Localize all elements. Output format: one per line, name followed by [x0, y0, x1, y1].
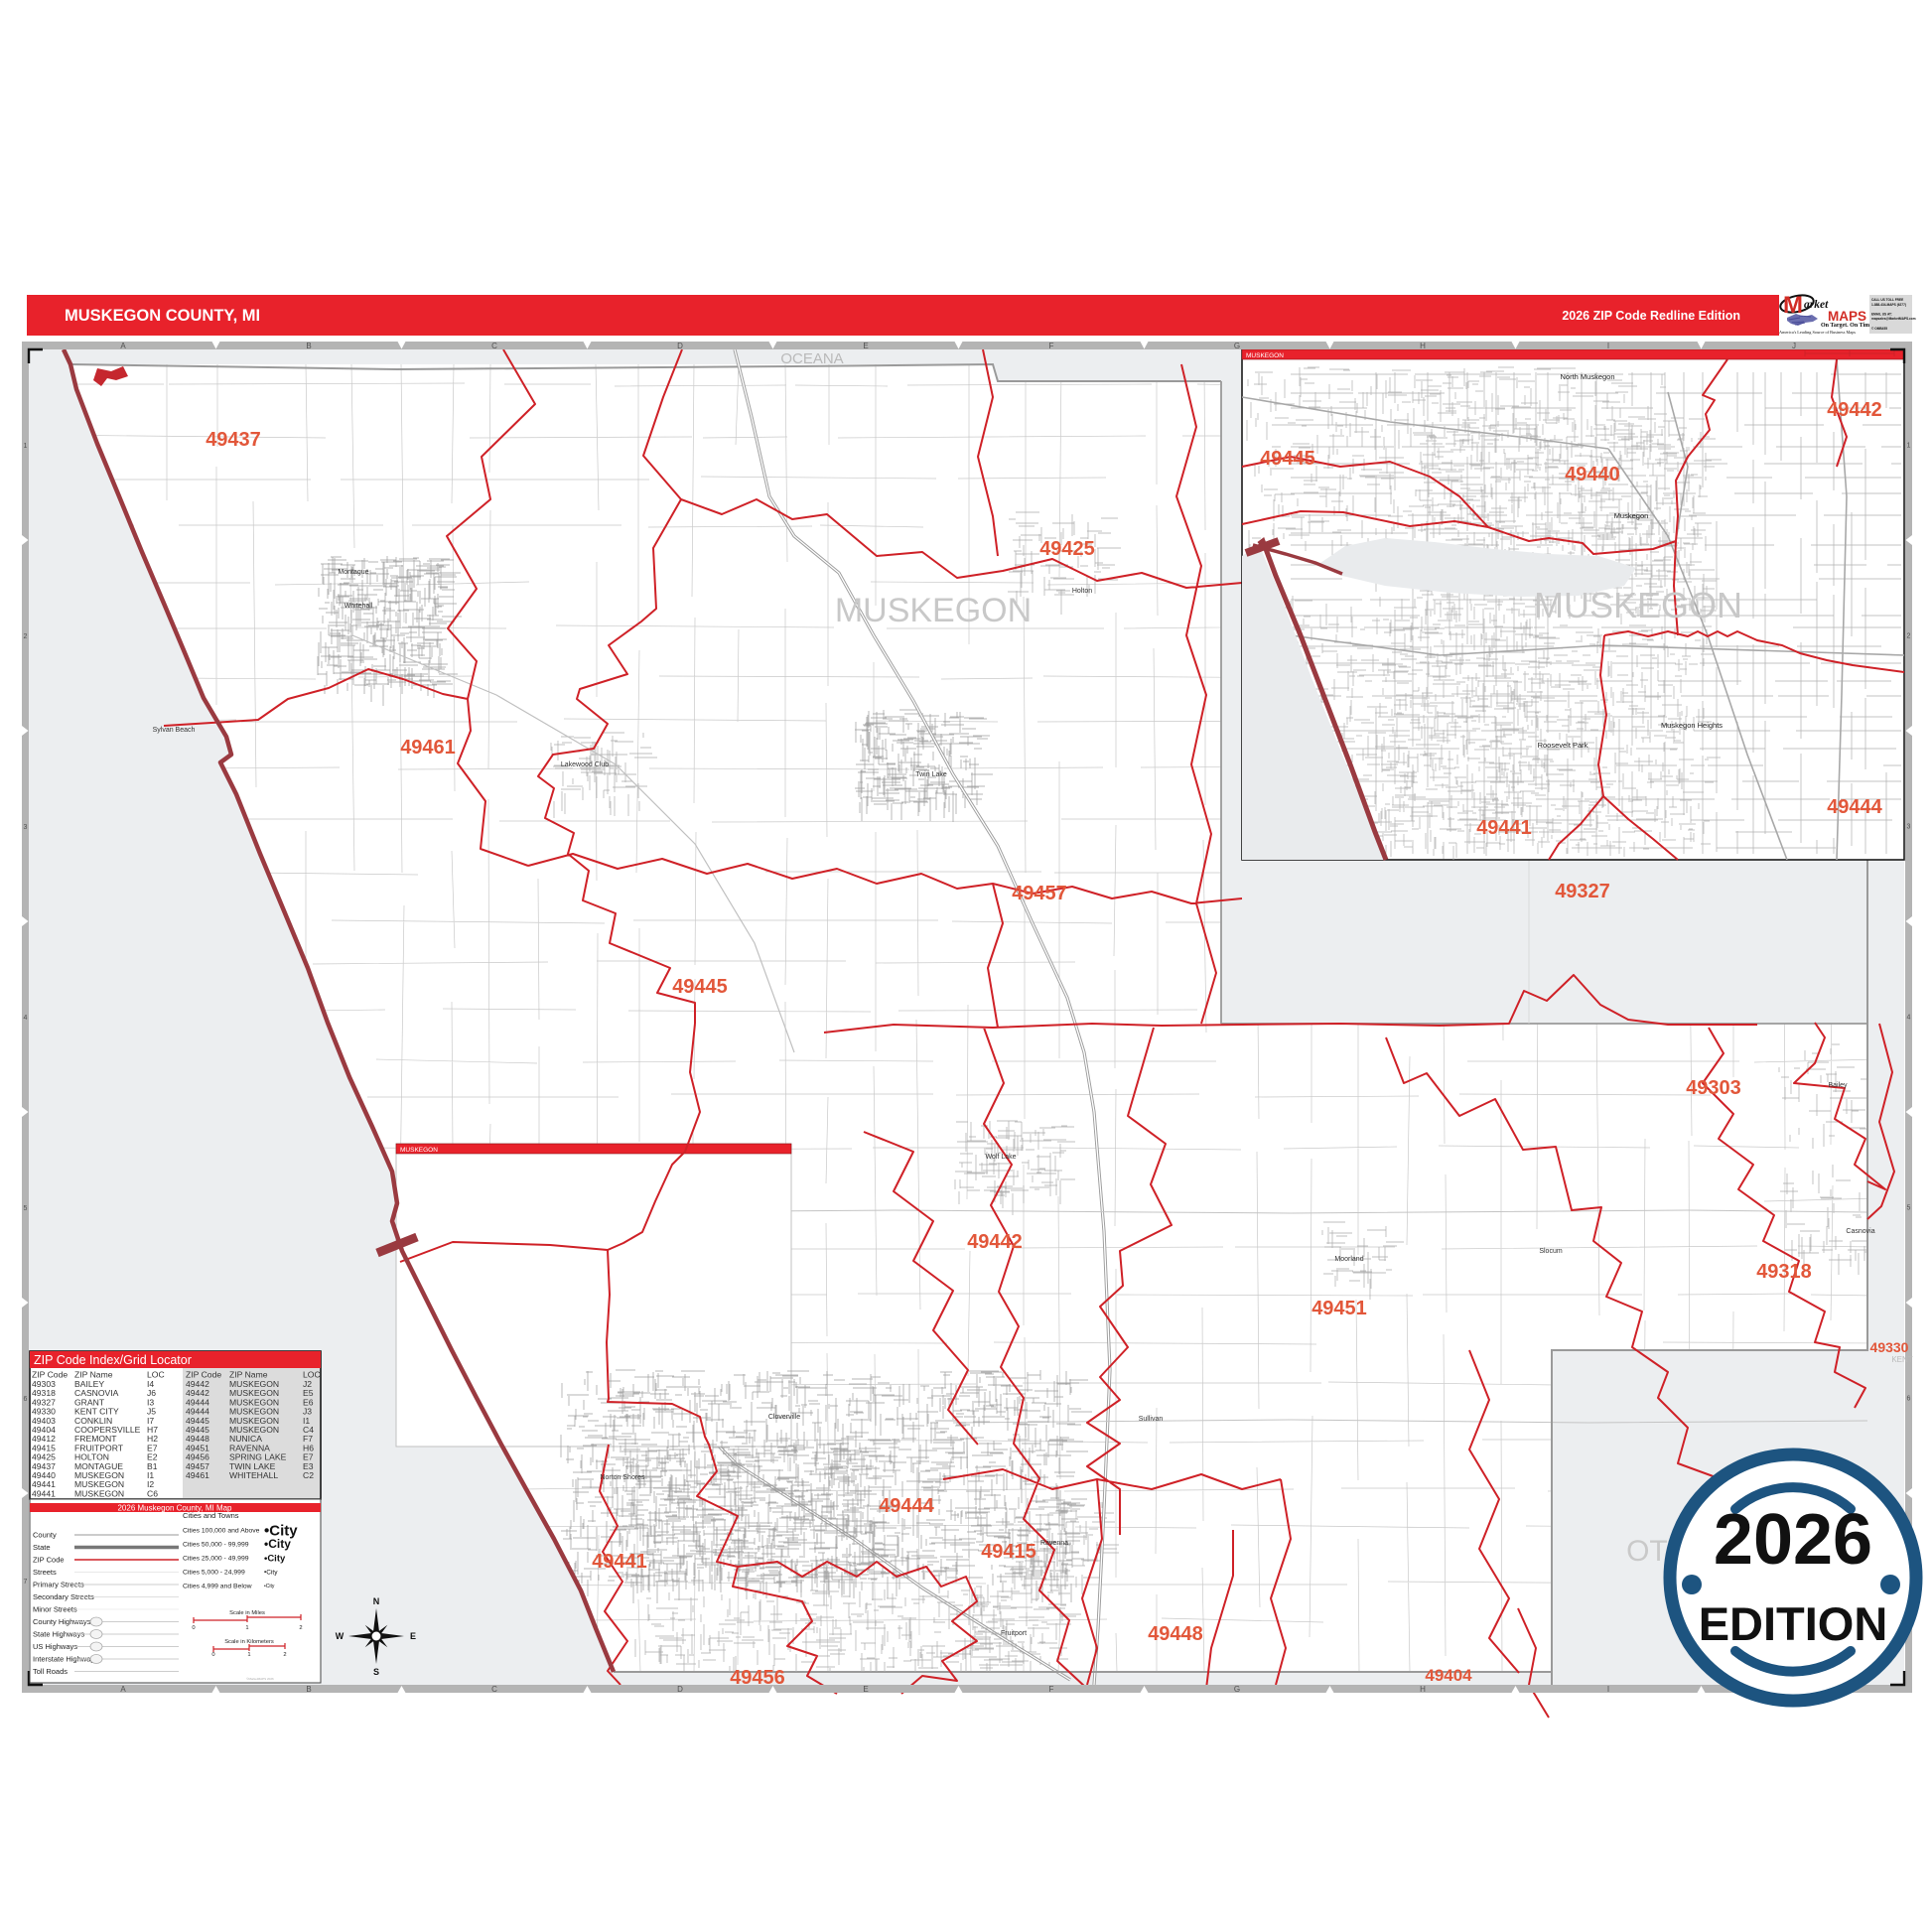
svg-text:Sylvan Beach: Sylvan Beach — [153, 727, 196, 734]
svg-text:MAPS: MAPS — [1828, 309, 1866, 324]
svg-text:49441: 49441 — [592, 1551, 647, 1573]
svg-text:F: F — [1049, 1685, 1054, 1694]
svg-text:State: State — [33, 1543, 51, 1552]
svg-text:E: E — [863, 342, 868, 350]
svg-text:2: 2 — [24, 633, 28, 640]
svg-text:Cities 4,999 and Below: Cities 4,999 and Below — [183, 1584, 252, 1590]
svg-text:Fruitport: Fruitport — [1001, 1630, 1027, 1637]
svg-text:2: 2 — [1907, 633, 1911, 640]
svg-text:ZIP Code: ZIP Code — [186, 1370, 221, 1380]
svg-text:Muskegon Heights: Muskegon Heights — [1661, 721, 1723, 730]
svg-text:Toll Roads: Toll Roads — [33, 1667, 68, 1676]
svg-text:MUSKEGON: MUSKEGON — [1246, 352, 1284, 359]
svg-text:B: B — [306, 342, 311, 350]
svg-text:Wolf Lake: Wolf Lake — [986, 1154, 1017, 1161]
svg-text:Holton: Holton — [1072, 588, 1092, 595]
svg-text:5: 5 — [24, 1205, 28, 1212]
svg-text:LOC: LOC — [303, 1370, 321, 1380]
svg-text:Slocum: Slocum — [1539, 1248, 1563, 1255]
svg-text:49303: 49303 — [1686, 1077, 1741, 1099]
svg-text:49451: 49451 — [1311, 1298, 1367, 1319]
svg-text:49437: 49437 — [206, 429, 261, 451]
svg-text:C2: C2 — [303, 1470, 314, 1480]
svg-text:H: H — [1420, 342, 1426, 350]
svg-text:WHITEHALL: WHITEHALL — [229, 1470, 278, 1480]
svg-text:2: 2 — [283, 1652, 286, 1658]
svg-text:1-888-434-MAPS (6277): 1-888-434-MAPS (6277) — [1871, 303, 1906, 307]
svg-text:H: H — [1420, 1685, 1426, 1694]
svg-text:3: 3 — [1907, 824, 1911, 831]
svg-text:4: 4 — [24, 1015, 28, 1022]
svg-text:A: A — [120, 342, 126, 350]
svg-text:•City: •City — [264, 1584, 275, 1589]
svg-text:KENT: KENT — [1891, 1355, 1912, 1364]
svg-text:MUSKEGON: MUSKEGON — [400, 1147, 438, 1154]
svg-text:1: 1 — [24, 443, 28, 450]
svg-text:Minor Streets: Minor Streets — [33, 1605, 77, 1614]
svg-text:•City: •City — [264, 1569, 278, 1576]
svg-text:49444: 49444 — [879, 1495, 934, 1517]
svg-text:49440: 49440 — [1565, 464, 1620, 485]
svg-text:OCEANA: OCEANA — [780, 350, 843, 367]
svg-text:49330: 49330 — [1870, 1339, 1909, 1355]
svg-text:C: C — [491, 342, 497, 350]
svg-text:MUSKEGON: MUSKEGON — [1534, 585, 1742, 625]
svg-text:County: County — [33, 1531, 57, 1540]
svg-text:D: D — [677, 1685, 683, 1694]
svg-text:0: 0 — [211, 1652, 214, 1658]
svg-text:49461: 49461 — [400, 737, 456, 759]
svg-text:arket: arket — [1804, 299, 1829, 311]
svg-text:Bailey: Bailey — [1828, 1082, 1848, 1089]
svg-text:EDITION: EDITION — [1699, 1597, 1888, 1650]
svg-text:I: I — [1607, 1685, 1609, 1694]
svg-text:M: M — [1783, 292, 1803, 319]
svg-text:49404: 49404 — [1425, 1666, 1472, 1685]
svg-text:Casnovia: Casnovia — [1846, 1228, 1874, 1235]
svg-text:Norton Shores: Norton Shores — [600, 1474, 645, 1481]
svg-text:Montague: Montague — [338, 569, 368, 576]
svg-text:E: E — [410, 1631, 416, 1641]
svg-text:49444: 49444 — [1827, 796, 1882, 818]
svg-text:W: W — [336, 1631, 345, 1641]
svg-text:2026 ZIP Code Redline Edition: 2026 ZIP Code Redline Edition — [1562, 309, 1740, 323]
svg-text:C: C — [491, 1685, 497, 1694]
svg-text:G: G — [1234, 1685, 1240, 1694]
svg-text:Whitehall: Whitehall — [345, 603, 373, 610]
svg-text:0: 0 — [192, 1625, 195, 1631]
svg-text:ZIP Name: ZIP Name — [74, 1370, 113, 1380]
svg-text:49442: 49442 — [967, 1231, 1023, 1253]
svg-text:On Target. On Time.: On Target. On Time. — [1821, 323, 1874, 329]
svg-text:B: B — [306, 1685, 311, 1694]
svg-text:Lakewood Club: Lakewood Club — [561, 761, 609, 768]
svg-text:2: 2 — [299, 1625, 302, 1631]
svg-text:4: 4 — [1907, 1015, 1911, 1022]
svg-text:A: A — [120, 1685, 126, 1694]
svg-text:49457: 49457 — [1012, 883, 1067, 904]
svg-text:E: E — [863, 1685, 868, 1694]
svg-text:ZIP Code: ZIP Code — [33, 1556, 65, 1565]
svg-text:MUSKEGON COUNTY, MI: MUSKEGON COUNTY, MI — [65, 307, 260, 325]
svg-text:7: 7 — [24, 1579, 28, 1586]
svg-text:Ravenna: Ravenna — [1040, 1540, 1068, 1547]
svg-text:America's Leading Source of B: America's Leading Source of Business Map… — [1779, 330, 1856, 335]
svg-text:49445: 49445 — [1260, 448, 1315, 470]
svg-text:Roosevelt Park: Roosevelt Park — [1538, 741, 1588, 750]
svg-text:LOC: LOC — [147, 1370, 165, 1380]
svg-text:49425: 49425 — [1039, 538, 1095, 560]
svg-text:CALL US TOLL FREE: CALL US TOLL FREE — [1871, 298, 1903, 302]
svg-text:N: N — [373, 1596, 380, 1606]
svg-text:J: J — [1792, 342, 1796, 350]
svg-text:Twin Lake: Twin Lake — [915, 771, 947, 778]
svg-text:Cities 50,000 - 99,999: Cities 50,000 - 99,999 — [183, 1542, 249, 1549]
svg-text:Cities 100,000 and Above: Cities 100,000 and Above — [183, 1528, 260, 1535]
svg-text:C6: C6 — [147, 1488, 158, 1498]
svg-text:I: I — [1607, 342, 1609, 350]
svg-text:F: F — [1049, 342, 1054, 350]
svg-text:3: 3 — [24, 824, 28, 831]
svg-text:North Muskegon: North Muskegon — [1560, 372, 1614, 381]
svg-text:MUSKEGON: MUSKEGON — [835, 592, 1032, 629]
svg-text:2026: 2026 — [1714, 1500, 1872, 1580]
svg-text:Muskegon: Muskegon — [1614, 511, 1649, 520]
svg-text:Cities 25,000 - 49,999: Cities 25,000 - 49,999 — [183, 1556, 249, 1563]
svg-text:Cloverville: Cloverville — [768, 1414, 800, 1421]
svg-text:•City: •City — [264, 1537, 291, 1551]
svg-text:Cities 5,000 - 24,999: Cities 5,000 - 24,999 — [183, 1570, 245, 1577]
svg-text:© OMB455: © OMB455 — [1871, 327, 1887, 331]
svg-text:49318: 49318 — [1756, 1261, 1812, 1283]
svg-text:US Highways: US Highways — [33, 1642, 77, 1651]
svg-text:6: 6 — [24, 1396, 28, 1403]
svg-text:Streets: Streets — [33, 1568, 57, 1577]
svg-text:6: 6 — [1907, 1396, 1911, 1403]
svg-text:1: 1 — [245, 1625, 248, 1631]
svg-text:49441: 49441 — [32, 1488, 56, 1498]
svg-text:49327: 49327 — [1555, 881, 1610, 902]
svg-text:Sullivan: Sullivan — [1139, 1416, 1164, 1423]
svg-text:EMAIL US AT:: EMAIL US AT: — [1871, 312, 1892, 316]
svg-text:•City: •City — [264, 1553, 286, 1564]
svg-text:1: 1 — [1907, 443, 1911, 450]
svg-text:S: S — [373, 1667, 379, 1677]
svg-text:49461: 49461 — [186, 1470, 209, 1480]
svg-text:©MarketMAPS 2026: ©MarketMAPS 2026 — [246, 1677, 274, 1681]
svg-text:49445: 49445 — [672, 976, 728, 998]
svg-text:Moorland: Moorland — [1334, 1256, 1363, 1263]
svg-text:ZIP Code Index/Grid Locator: ZIP Code Index/Grid Locator — [34, 1353, 192, 1367]
svg-text:MUSKEGON: MUSKEGON — [74, 1488, 124, 1498]
svg-text:49448: 49448 — [1148, 1623, 1203, 1645]
svg-text:49441: 49441 — [1476, 817, 1532, 839]
svg-text:1: 1 — [247, 1652, 250, 1658]
svg-text:D: D — [677, 342, 683, 350]
svg-text:49442: 49442 — [1827, 399, 1882, 421]
svg-text:49415: 49415 — [981, 1541, 1036, 1563]
svg-text:G: G — [1234, 342, 1240, 350]
svg-text:mapsales@MarketMAPS.com: mapsales@MarketMAPS.com — [1871, 317, 1916, 321]
svg-text:ZIP Code: ZIP Code — [32, 1370, 68, 1380]
svg-text:Cities and Towns: Cities and Towns — [183, 1511, 239, 1520]
svg-text:5: 5 — [1907, 1205, 1911, 1212]
svg-text:ZIP Name: ZIP Name — [229, 1370, 268, 1380]
